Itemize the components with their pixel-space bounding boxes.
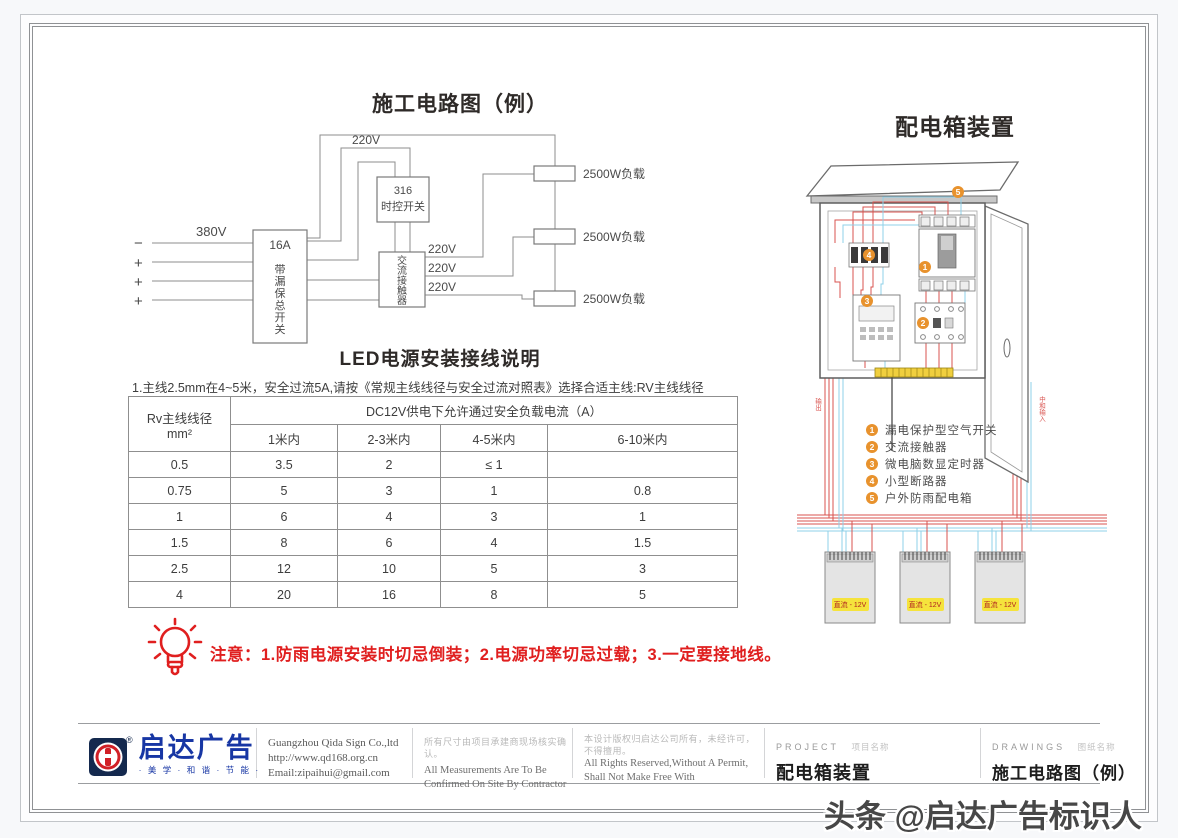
- svg-text:带: 带: [275, 263, 286, 276]
- load-box-3: [534, 291, 575, 306]
- psu-1: 直流 - 12V: [825, 552, 875, 623]
- svg-text:3: 3: [865, 296, 870, 306]
- company-email: Email:zipaihui@gmail.com: [268, 766, 408, 781]
- circuit-diagram: 380V − + + + 16A 带 漏 保 总 开 关 316 时控开关 交 …: [130, 118, 655, 358]
- terminal-strip: [875, 368, 953, 377]
- load-box-1: [534, 166, 575, 181]
- rights-note-en2: Shall Not Make Free With: [584, 771, 764, 785]
- legend-label: 交流接触器: [885, 439, 948, 455]
- toutiao-watermark: 头条 @启达广告标识人: [824, 791, 1142, 836]
- wire-label-right: 中和输入: [1038, 395, 1046, 423]
- breaker-rating: 16A: [269, 238, 290, 252]
- table-row: 0.755310.8: [129, 478, 738, 504]
- contactor-name-vertical: 交 流 接 触 器: [397, 254, 407, 307]
- legend-item: 1 漏电保护型空气开关: [866, 421, 998, 438]
- cabinet-roof: [807, 162, 1018, 196]
- table-row: 0.53.52≤ 1: [129, 452, 738, 478]
- svg-text:2: 2: [921, 318, 926, 328]
- table-row: 4201685: [129, 582, 738, 608]
- distribution-box-illustration: 5 1 4 3 2 输出 中和输入 直流 - 12V 直流 - 12V 直流 -: [795, 150, 1115, 650]
- company-website: http://www.qd168.org.cn: [268, 751, 408, 766]
- titleblock-top-rule: [78, 723, 1100, 724]
- project-value: 配电箱装置: [776, 759, 889, 785]
- breaker-name-vertical: 带 漏 保 总 开 关: [275, 263, 286, 336]
- symbol-minus: −: [134, 235, 143, 252]
- distribution-legend: 1 漏电保护型空气开关 2 交流接触器 3 微电脑数显定时器 4 小型断路器 5…: [866, 421, 998, 506]
- label-220v-out2: 220V: [428, 261, 456, 275]
- qida-logo-icon: [88, 735, 130, 777]
- titleblock-divider: [764, 728, 765, 778]
- svg-text:保: 保: [275, 286, 286, 300]
- legend-item: 2 交流接触器: [866, 438, 998, 455]
- drawings-sub-label: 图纸名称: [1078, 742, 1116, 752]
- legend-badge: 1: [866, 424, 878, 436]
- psu-3: 直流 - 12V: [975, 552, 1025, 623]
- table-subheader-3: 4-5米内: [441, 425, 548, 452]
- rights-note-cn2: 不得擅用。: [584, 745, 764, 757]
- symbol-plus-2: +: [134, 274, 143, 291]
- project-label: PROJECT: [776, 742, 839, 752]
- psu-label: 直流 - 12V: [984, 600, 1017, 609]
- legend-badge: 4: [866, 475, 878, 487]
- symbol-plus-1: +: [134, 255, 143, 272]
- rights-note-cn1: 本设计版权归启达公司所有，未经许可，: [584, 733, 764, 745]
- legend-badge: 3: [866, 458, 878, 470]
- project-block: PROJECT 项目名称 配电箱装置: [776, 737, 889, 785]
- measurement-note-cn: 所有尺寸由项目承建商现场核实确认。: [424, 736, 569, 760]
- rights-note-block: 本设计版权归启达公司所有，未经许可， 不得擅用。 All Rights Rese…: [584, 733, 764, 785]
- wire-breaker-to-contactor: [307, 280, 379, 300]
- psu-2: 直流 - 12V: [900, 552, 950, 623]
- registered-mark: ®: [126, 735, 133, 745]
- label-load-3: 2500W负载: [583, 292, 645, 306]
- drawings-block: DRAWINGS 图纸名称 施工电路图（例）: [992, 737, 1136, 784]
- timer-box: [377, 177, 429, 222]
- wire-gauge-table: Rv主线线径 mm² DC12V供电下允许通过安全负载电流（A） 1米内 2-3…: [128, 396, 738, 608]
- legend-badge: 2: [866, 441, 878, 453]
- table-row: 2.5121053: [129, 556, 738, 582]
- distribution-title: 配电箱装置: [795, 108, 1115, 142]
- timer-model: 316: [394, 185, 412, 197]
- led-section-title: LED电源安装接线说明: [320, 344, 560, 371]
- svg-text:关: 关: [275, 322, 286, 336]
- legend-item: 3 微电脑数显定时器: [866, 455, 998, 472]
- symbol-plus-3: +: [134, 293, 143, 310]
- titleblock-divider: [980, 728, 981, 778]
- wire-timer-to-contactor: [395, 222, 410, 252]
- timer-name: 时控开关: [381, 199, 425, 213]
- svg-text:器: 器: [397, 295, 407, 307]
- legend-label: 小型断路器: [885, 473, 948, 489]
- led-note: 1.主线2.5mm在4~5米，安全过流5A,请按《常规主线线径与安全过流对照表》…: [132, 377, 772, 396]
- company-name: Guangzhou Qida Sign Co.,ltd: [268, 736, 408, 751]
- legend-label: 漏电保护型空气开关: [885, 422, 998, 438]
- load-box-2: [534, 229, 575, 244]
- wire-output-3: [425, 295, 534, 299]
- titleblock-divider: [412, 728, 413, 778]
- label-380v: 380V: [196, 224, 227, 239]
- main-breaker: [919, 215, 975, 291]
- svg-text:4: 4: [867, 250, 872, 260]
- table-subheader-4: 6-10米内: [548, 425, 738, 452]
- titleblock-divider: [572, 728, 573, 778]
- svg-text:1: 1: [923, 262, 928, 272]
- legend-badge: 5: [866, 492, 878, 504]
- legend-item: 5 户外防雨配电箱: [866, 489, 998, 506]
- lightbulb-icon: [145, 616, 205, 680]
- wire-label-left: 输出: [814, 397, 822, 413]
- psu-units: 直流 - 12V 直流 - 12V 直流 - 12V: [825, 552, 1025, 623]
- company-info-block: Guangzhou Qida Sign Co.,ltd http://www.q…: [268, 736, 408, 781]
- measurement-note-en1: All Measurements Are To Be: [424, 764, 569, 778]
- drawings-label: DRAWINGS: [992, 742, 1065, 752]
- svg-text:开: 开: [275, 312, 286, 324]
- legend-label: 微电脑数显定时器: [885, 456, 985, 472]
- project-sub-label: 项目名称: [851, 742, 889, 752]
- rights-note-en1: All Rights Reserved,Without A Permit,: [584, 757, 764, 771]
- svg-text:总: 总: [275, 298, 286, 312]
- circuit-diagram-title: 施工电路图（例）: [330, 88, 590, 118]
- measurement-note-en2: Confirmed On Site By Contractor: [424, 778, 569, 792]
- measurement-note-block: 所有尺寸由项目承建商现场核实确认。 All Measurements Are T…: [424, 736, 569, 792]
- svg-text:漏: 漏: [275, 275, 286, 288]
- label-load-1: 2500W负载: [583, 167, 645, 181]
- svg-text:5: 5: [956, 187, 961, 197]
- drawings-value: 施工电路图（例）: [992, 759, 1136, 784]
- timer-device: [853, 295, 900, 361]
- input-lines-phase: [152, 262, 253, 300]
- table-subheader-2: 2-3米内: [338, 425, 441, 452]
- table-subheader-1: 1米内: [231, 425, 338, 452]
- table-row: 16431: [129, 504, 738, 530]
- table-row: 1.58641.5: [129, 530, 738, 556]
- logo-wordmark: 启达广告: [139, 735, 261, 762]
- legend-item: 4 小型断路器: [866, 472, 998, 489]
- psu-label: 直流 - 12V: [909, 600, 942, 609]
- psu-label: 直流 - 12V: [834, 600, 867, 609]
- label-load-2: 2500W负载: [583, 230, 645, 244]
- company-logo: ® 启达广告 · 美 学 · 和 谐 · 节 能 ·: [88, 735, 260, 777]
- table-span-header: DC12V供电下允许通过安全负载电流（A）: [231, 397, 738, 425]
- label-220v-out1: 220V: [428, 242, 456, 256]
- label-220v-out3: 220V: [428, 280, 456, 294]
- logo-tagline: · 美 学 · 和 谐 · 节 能 ·: [139, 764, 261, 776]
- table-col1-header: Rv主线线径 mm²: [129, 397, 231, 452]
- legend-label: 户外防雨配电箱: [885, 490, 973, 506]
- label-220v-top: 220V: [352, 133, 380, 147]
